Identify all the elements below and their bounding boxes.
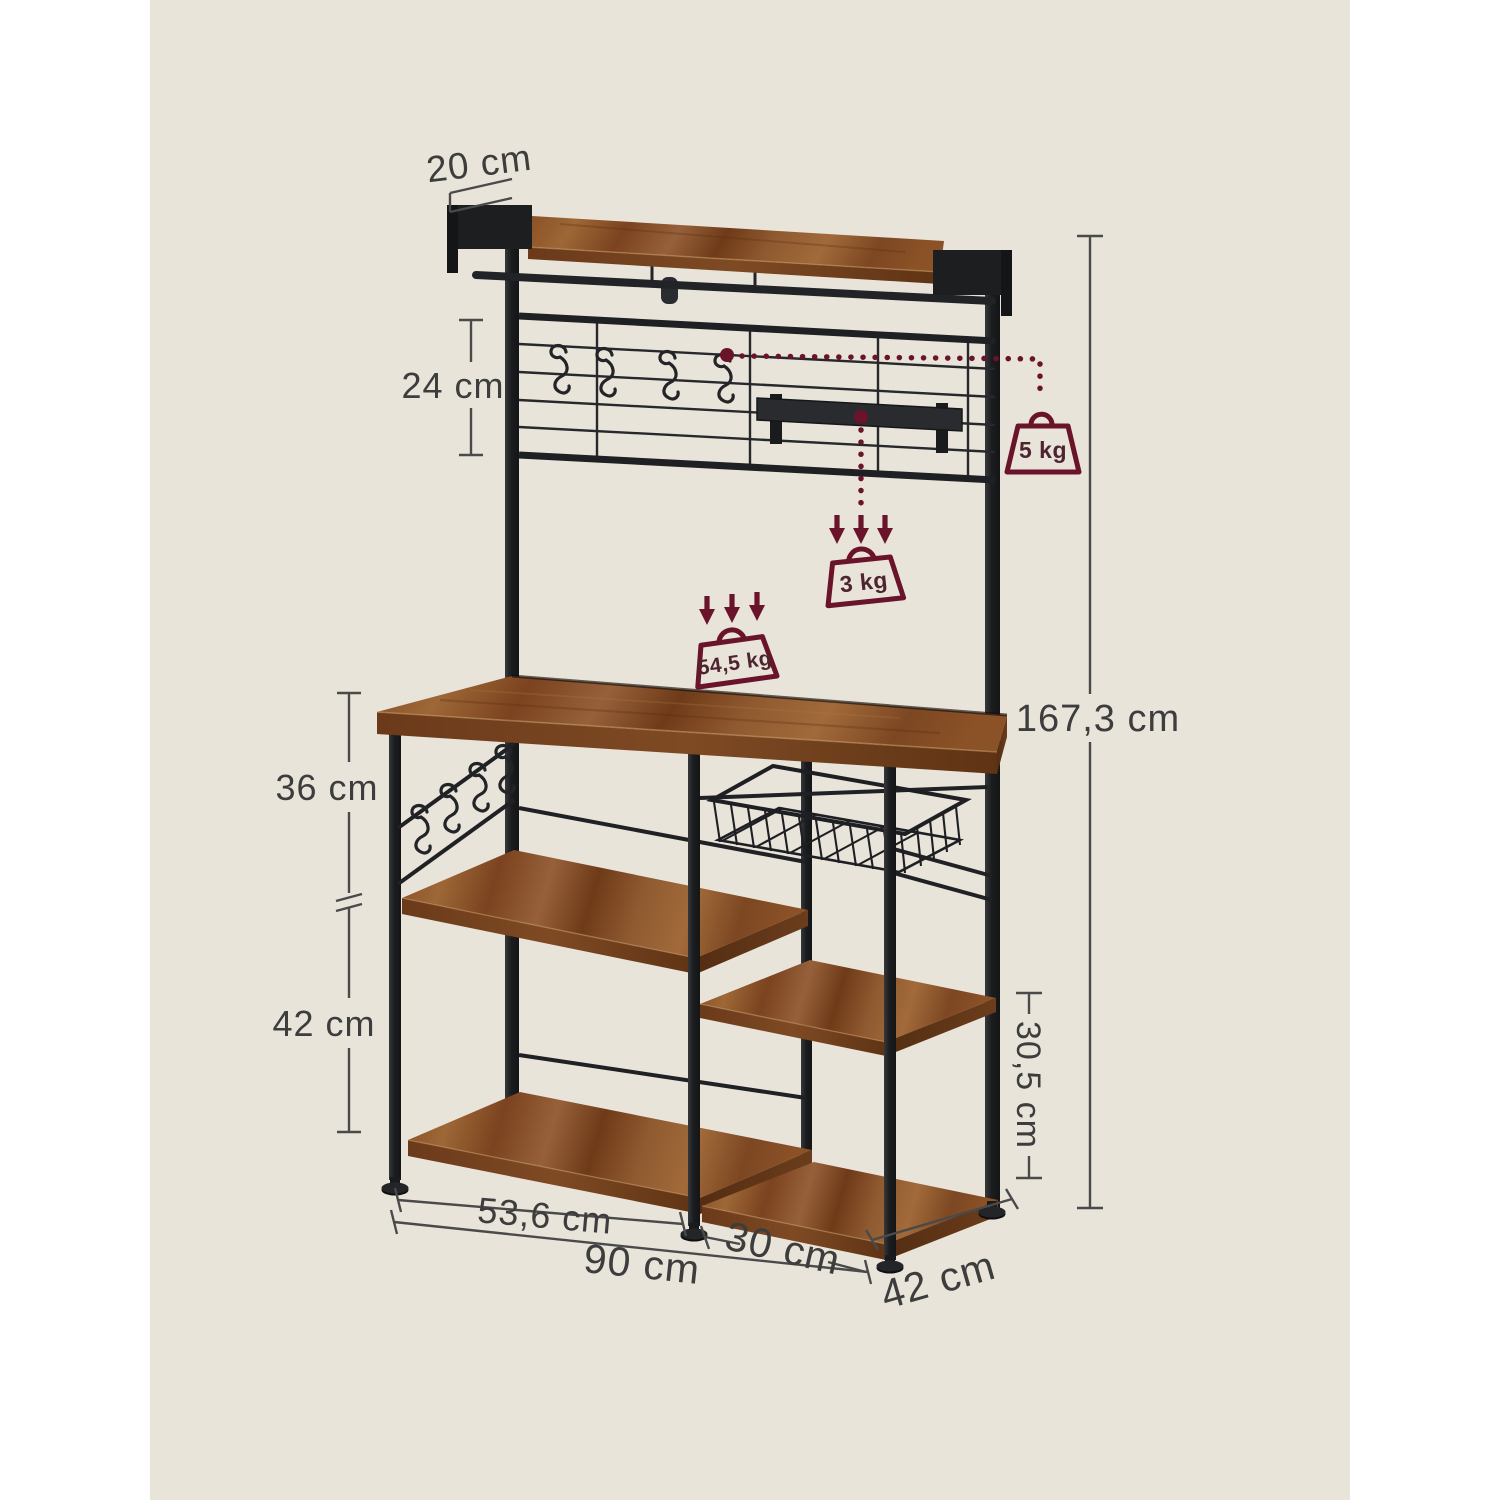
label-grid-height: 24 cm xyxy=(401,365,504,406)
top-shelf-right-cap xyxy=(933,250,1012,295)
label-load-hook: 5 kg xyxy=(1019,437,1067,463)
label-middle-to-bottom-shelf: 42 cm xyxy=(272,1003,375,1044)
front-left-leg xyxy=(389,716,401,1180)
product-dimension-diagram: 20 cm 24 cm 36 cm 42 cm 53,6 cm 90 cm 30… xyxy=(0,0,1500,1500)
label-total-height: 167,3 cm xyxy=(1016,698,1180,740)
top-shelf-left-cap-side xyxy=(447,205,458,273)
top-shelf-right-cap-side xyxy=(1001,250,1012,316)
bakers-rack-illustration: 20 cm 24 cm 36 cm 42 cm 53,6 cm 90 cm 30… xyxy=(0,0,1500,1500)
anchor-dot xyxy=(720,348,734,362)
anchor-dot xyxy=(854,410,868,424)
front-right-leg xyxy=(884,750,896,1260)
label-load-rail: 3 kg xyxy=(838,566,888,597)
top-shelf-left-cap xyxy=(447,205,532,249)
label-right-clearance: 30,5 cm xyxy=(1009,1021,1047,1149)
label-worktop-to-middle-shelf: 36 cm xyxy=(275,767,378,808)
middle-front-leg xyxy=(688,736,700,1226)
weight-icon-5kg: 5 kg xyxy=(1007,426,1079,472)
middle-rear-leg xyxy=(801,700,812,1160)
